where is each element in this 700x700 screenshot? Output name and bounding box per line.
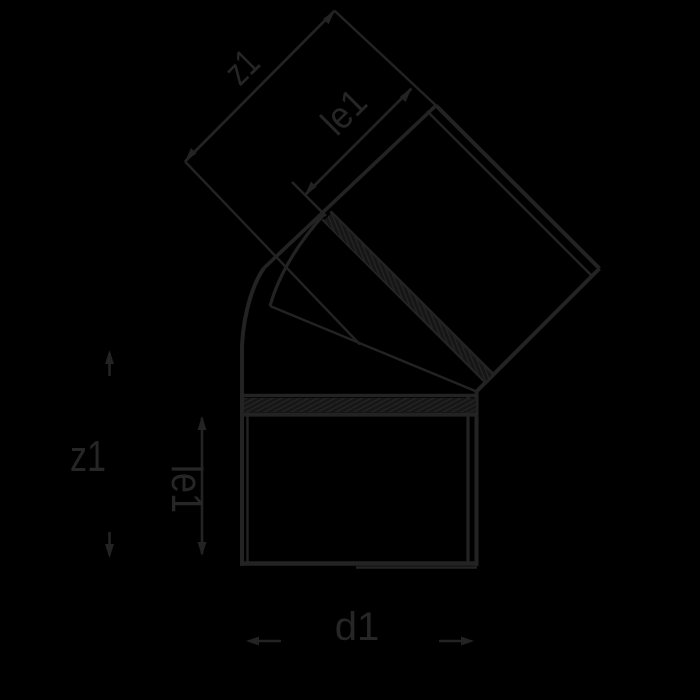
svg-text:z1: z1: [70, 432, 106, 481]
svg-text:d1: d1: [335, 605, 380, 649]
svg-text:le1: le1: [162, 465, 211, 513]
